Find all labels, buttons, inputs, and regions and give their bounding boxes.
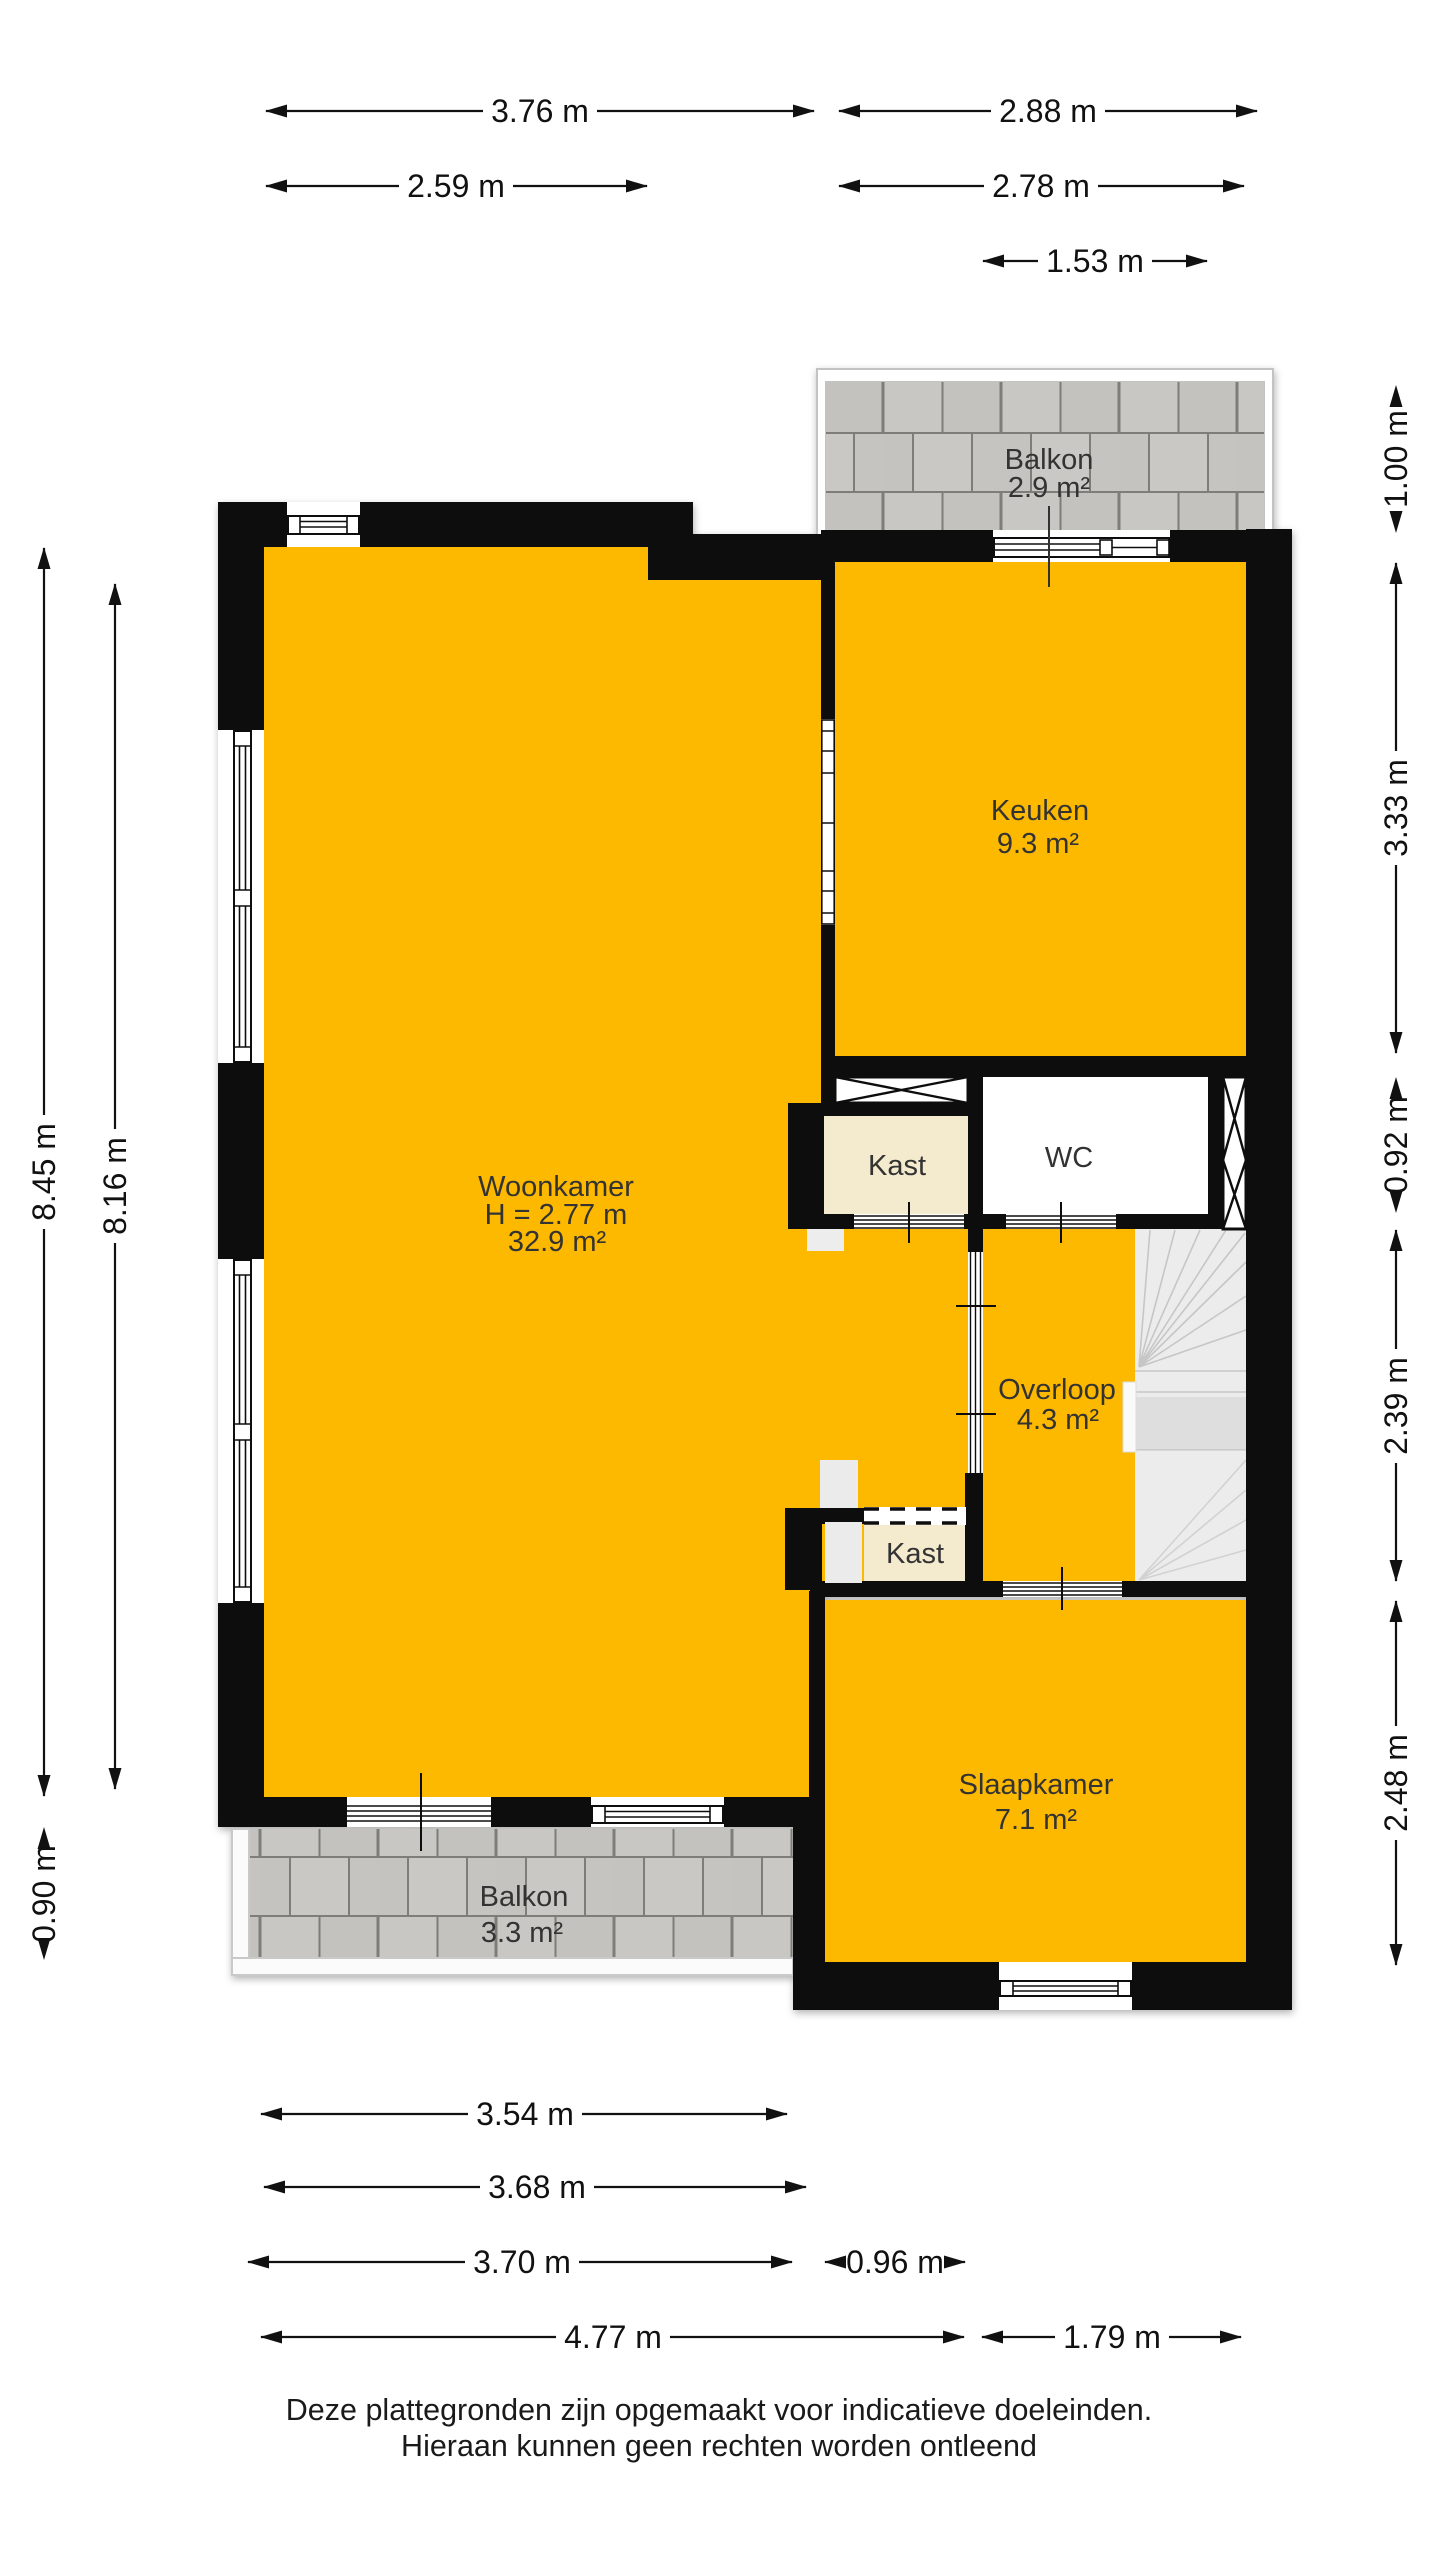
- svg-text:Kast: Kast: [868, 1150, 926, 1182]
- svg-text:Balkon: Balkon: [480, 1881, 569, 1913]
- svg-text:Kast: Kast: [886, 1538, 944, 1570]
- svg-text:3.33 m: 3.33 m: [1378, 759, 1414, 857]
- svg-text:2.9 m²: 2.9 m²: [1008, 472, 1091, 504]
- svg-text:8.16 m: 8.16 m: [97, 1137, 133, 1235]
- svg-text:0.92 m: 0.92 m: [1378, 1096, 1414, 1194]
- svg-text:Slaapkamer: Slaapkamer: [959, 1769, 1114, 1801]
- svg-text:Deze plattegronden zijn opgema: Deze plattegronden zijn opgemaakt voor i…: [286, 2393, 1152, 2427]
- svg-text:2.48 m: 2.48 m: [1378, 1734, 1414, 1832]
- svg-text:3.54 m: 3.54 m: [476, 2096, 574, 2132]
- svg-text:2.88 m: 2.88 m: [999, 93, 1097, 129]
- svg-text:32.9 m²: 32.9 m²: [508, 1226, 607, 1258]
- svg-text:2.78 m: 2.78 m: [992, 168, 1090, 204]
- svg-text:0.90 m: 0.90 m: [26, 1845, 62, 1943]
- svg-text:1.79 m: 1.79 m: [1063, 2319, 1161, 2355]
- svg-text:4.3 m²: 4.3 m²: [1017, 1404, 1100, 1436]
- svg-text:8.45 m: 8.45 m: [26, 1123, 62, 1221]
- svg-text:WC: WC: [1045, 1142, 1093, 1174]
- svg-text:9.3 m²: 9.3 m²: [997, 828, 1080, 860]
- svg-text:3.3 m²: 3.3 m²: [481, 1917, 564, 1949]
- svg-text:7.1 m²: 7.1 m²: [995, 1804, 1078, 1836]
- svg-text:3.70 m: 3.70 m: [473, 2244, 571, 2280]
- svg-text:3.68 m: 3.68 m: [488, 2169, 586, 2205]
- svg-text:Hieraan kunnen geen rechten wo: Hieraan kunnen geen rechten worden ontle…: [401, 2429, 1037, 2463]
- svg-text:1.00 m: 1.00 m: [1378, 410, 1414, 508]
- svg-text:1.53 m: 1.53 m: [1046, 243, 1144, 279]
- svg-text:4.77 m: 4.77 m: [564, 2319, 662, 2355]
- svg-text:2.59 m: 2.59 m: [407, 168, 505, 204]
- svg-text:3.76 m: 3.76 m: [491, 93, 589, 129]
- svg-text:Keuken: Keuken: [991, 795, 1089, 827]
- svg-text:0.96 m: 0.96 m: [846, 2244, 944, 2280]
- svg-text:Overloop: Overloop: [998, 1374, 1116, 1406]
- svg-text:2.39 m: 2.39 m: [1378, 1357, 1414, 1455]
